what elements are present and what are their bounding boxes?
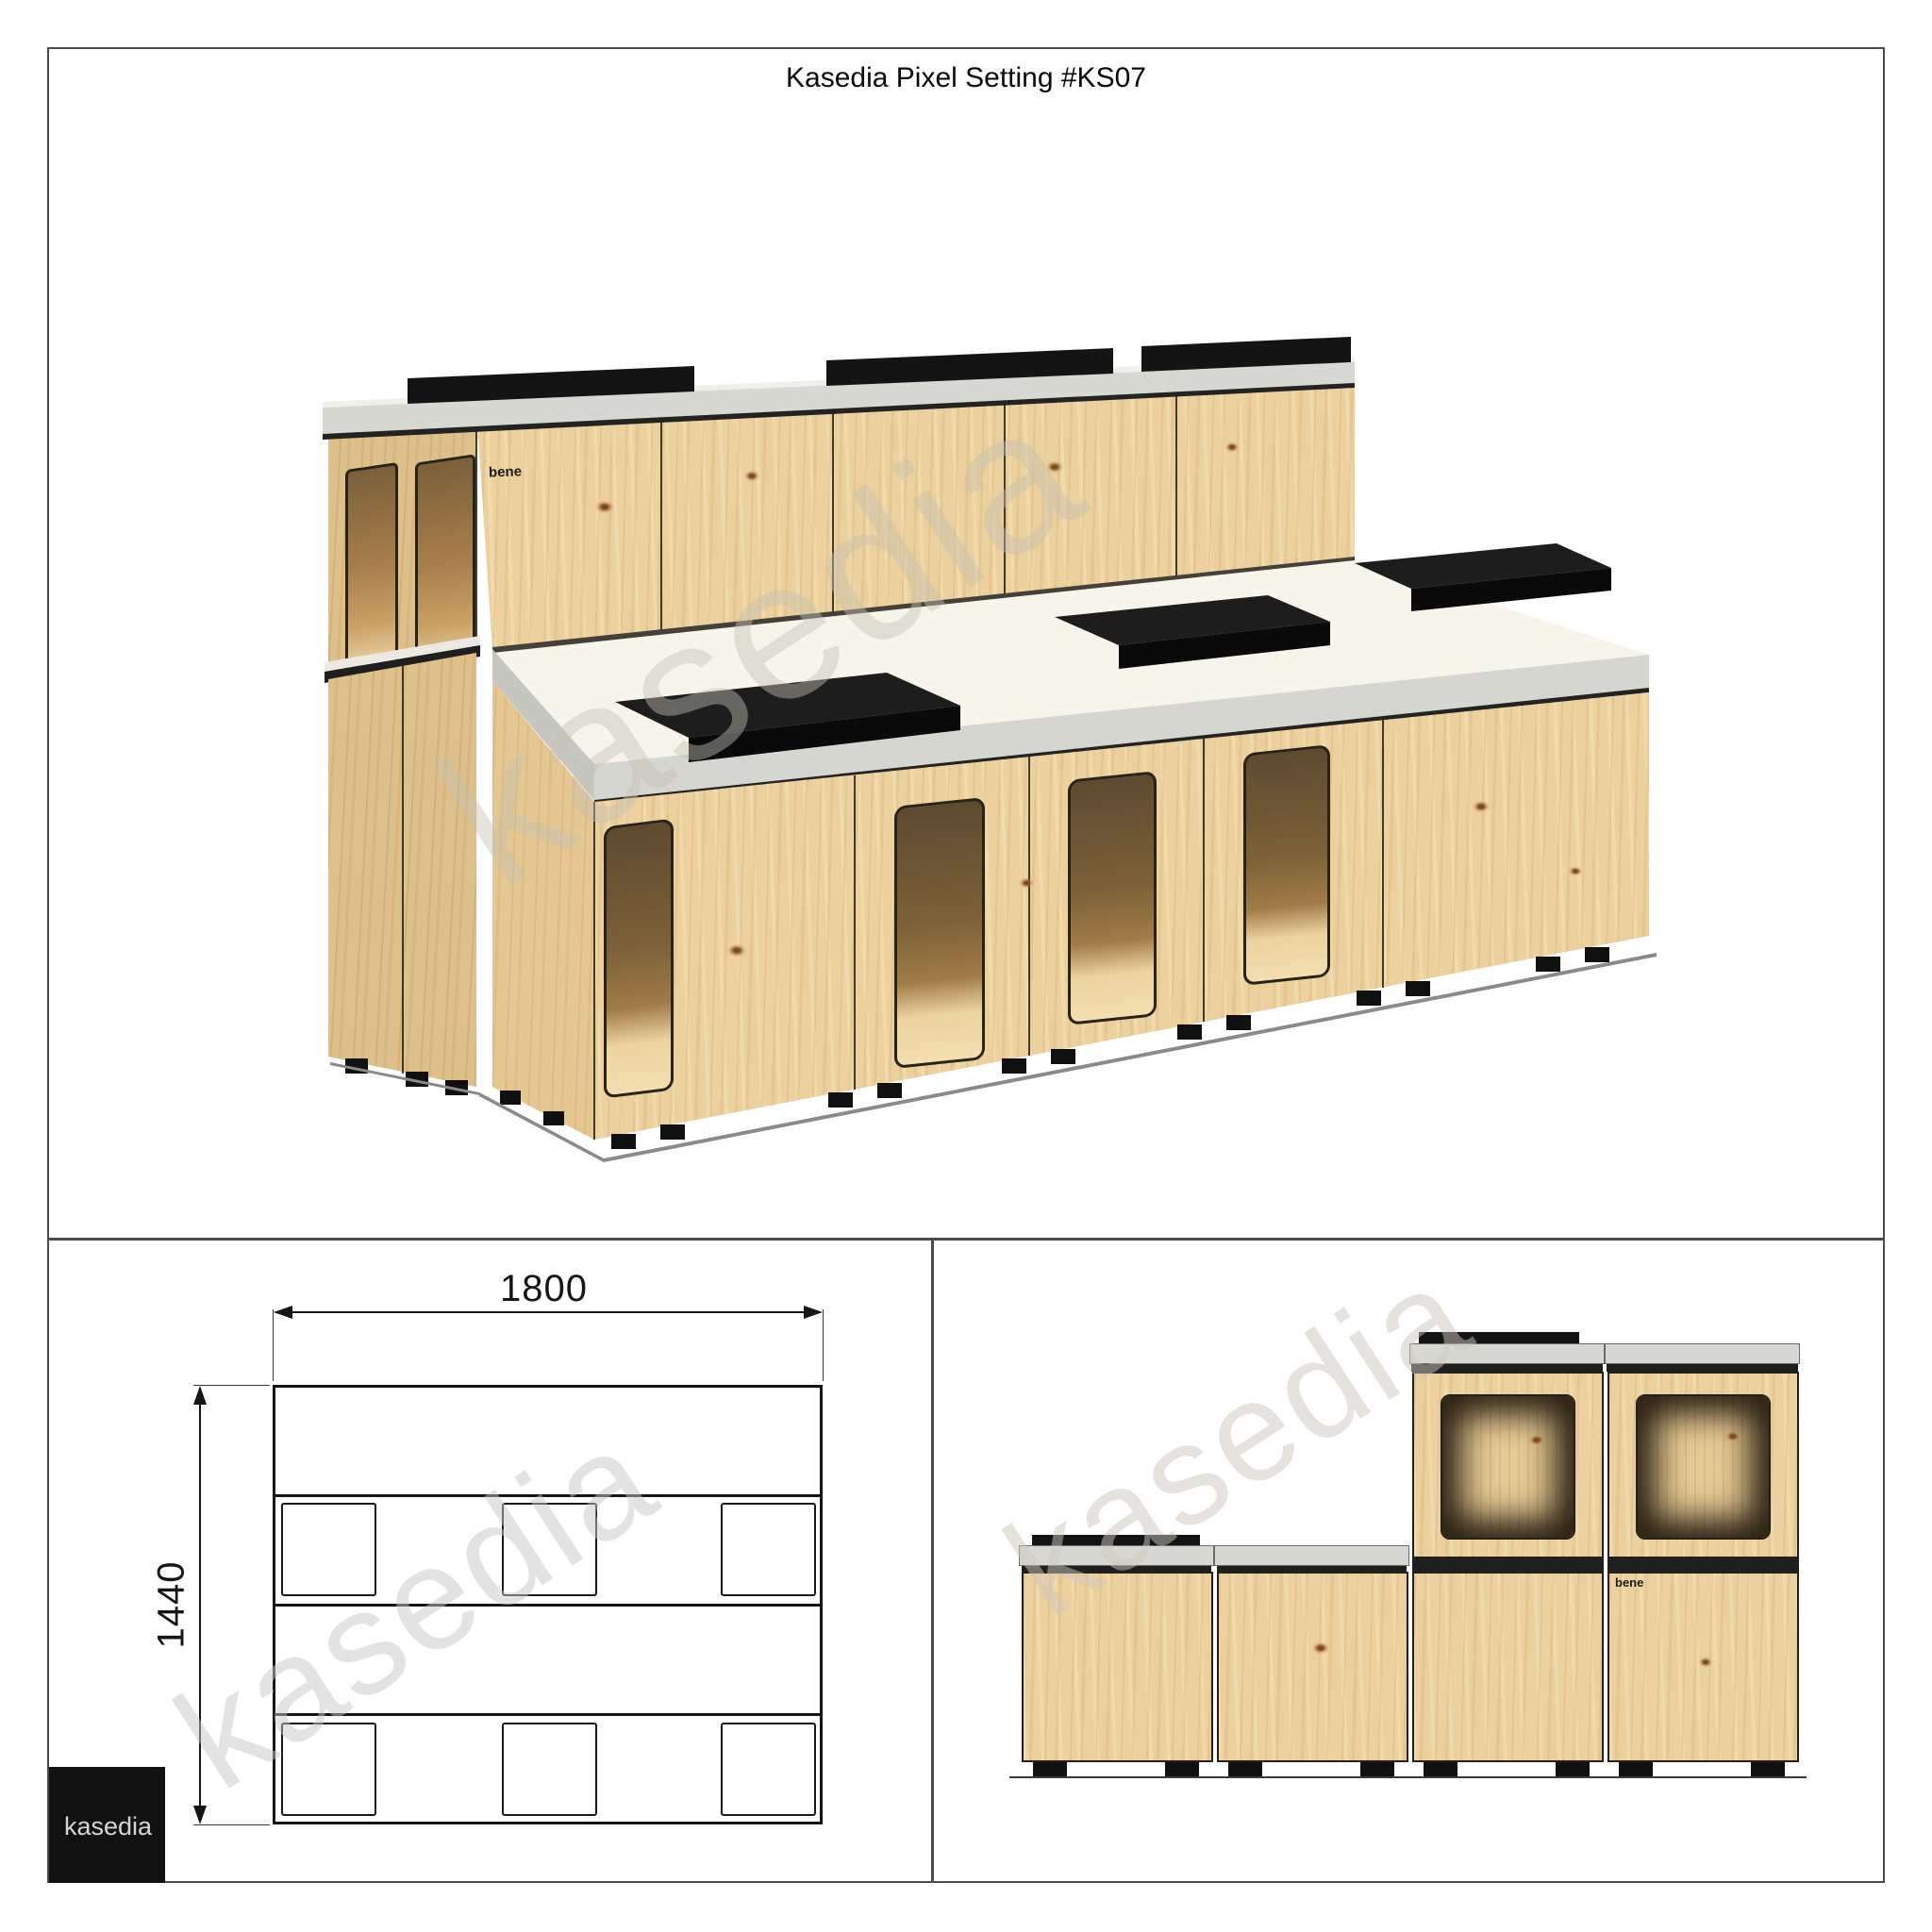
base-cushion <box>1032 1535 1200 1545</box>
wood-knot <box>1528 1434 1545 1446</box>
base-slab <box>1019 1545 1214 1566</box>
foot <box>1033 1762 1067 1776</box>
drawing-sheet: Kasedia Pixel Setting #KS07 bene <box>0 0 1932 1932</box>
wood-knot <box>1311 1641 1330 1655</box>
base-box <box>1412 1572 1604 1762</box>
ground-line <box>1009 1776 1807 1778</box>
upper-slab <box>1409 1343 1605 1364</box>
foot <box>1165 1762 1199 1776</box>
storey-joint <box>1412 1558 1604 1572</box>
upper-box-window <box>1441 1394 1575 1540</box>
upper-box-window <box>1636 1394 1771 1540</box>
upper-slab <box>1605 1343 1800 1364</box>
foot <box>1360 1762 1394 1776</box>
side-elevation-view: bene kasedia <box>0 0 1932 1932</box>
foot <box>1751 1762 1785 1776</box>
upper-cushion <box>1419 1332 1579 1343</box>
upper-slab-joint <box>1411 1364 1603 1372</box>
base-box <box>1022 1572 1213 1762</box>
wood-knot <box>1724 1430 1741 1442</box>
base-slab <box>1214 1545 1409 1566</box>
bene-logo-side: bene <box>1615 1575 1643 1590</box>
upper-slab-joint <box>1607 1364 1798 1372</box>
foot <box>1228 1762 1262 1776</box>
storey-joint <box>1607 1558 1799 1572</box>
foot <box>1619 1762 1653 1776</box>
foot <box>1556 1762 1590 1776</box>
base-box <box>1217 1572 1408 1762</box>
wood-knot <box>1698 1657 1713 1668</box>
foot <box>1424 1762 1457 1776</box>
